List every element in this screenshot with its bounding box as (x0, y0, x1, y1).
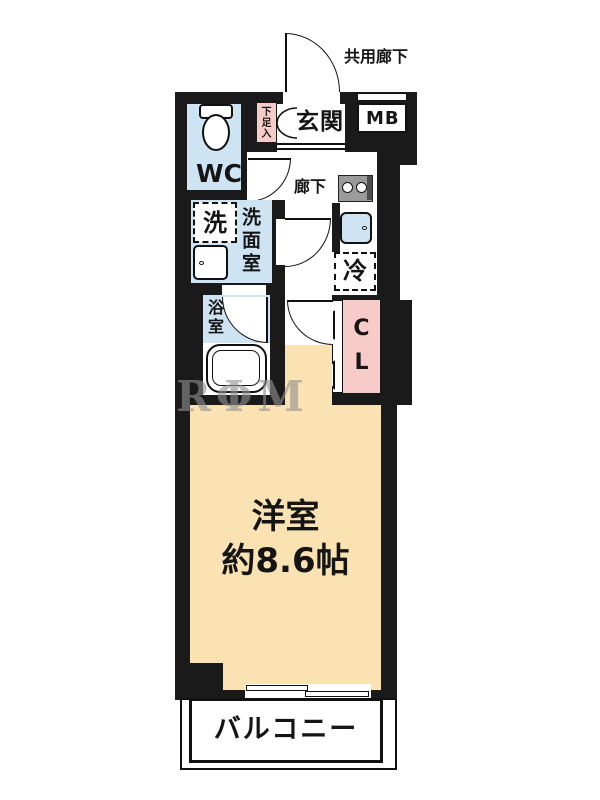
wc-label: WC (196, 161, 242, 186)
shoe-box-label: 下足入 (259, 106, 269, 139)
balcony-label: バルコニー (189, 716, 383, 743)
shoe-box-doors-icon (274, 104, 300, 140)
watermark: RΦM CORP (176, 374, 418, 422)
fridge-label: 冷 (343, 259, 367, 283)
genkan-step (277, 141, 345, 152)
room-size: 約8.6帖 (190, 539, 381, 583)
balcony-window (245, 684, 371, 699)
washstand-icon (193, 245, 228, 280)
mb-label: MB (366, 110, 400, 128)
washroom-label: 洗面室 (240, 207, 259, 276)
toilet-bowl-icon (202, 114, 230, 151)
floor-plan: 共用廊下 MB WC 下足入 玄関 廊下 冷 洗 (0, 0, 600, 800)
entrance-door-arc (285, 33, 340, 92)
room-name-label: 洋室 約8.6帖 (190, 495, 381, 583)
common-corridor-label: 共用廊下 (344, 49, 408, 65)
room-name: 洋室 (190, 495, 381, 539)
bathroom-label: 浴室 (206, 299, 222, 337)
kitchen-sink-icon (340, 212, 372, 244)
stove-icon (338, 175, 373, 202)
genkan-label: 玄関 (296, 111, 344, 134)
kitchen-partition-wall (332, 203, 340, 252)
mb-door-strip (357, 93, 407, 101)
bathroom-door-opening (222, 285, 266, 295)
washer-label: 洗 (203, 211, 227, 235)
washroom-door-opening (276, 219, 285, 265)
entrance-opening (283, 92, 340, 104)
corridor-label: 廊下 (294, 179, 326, 195)
